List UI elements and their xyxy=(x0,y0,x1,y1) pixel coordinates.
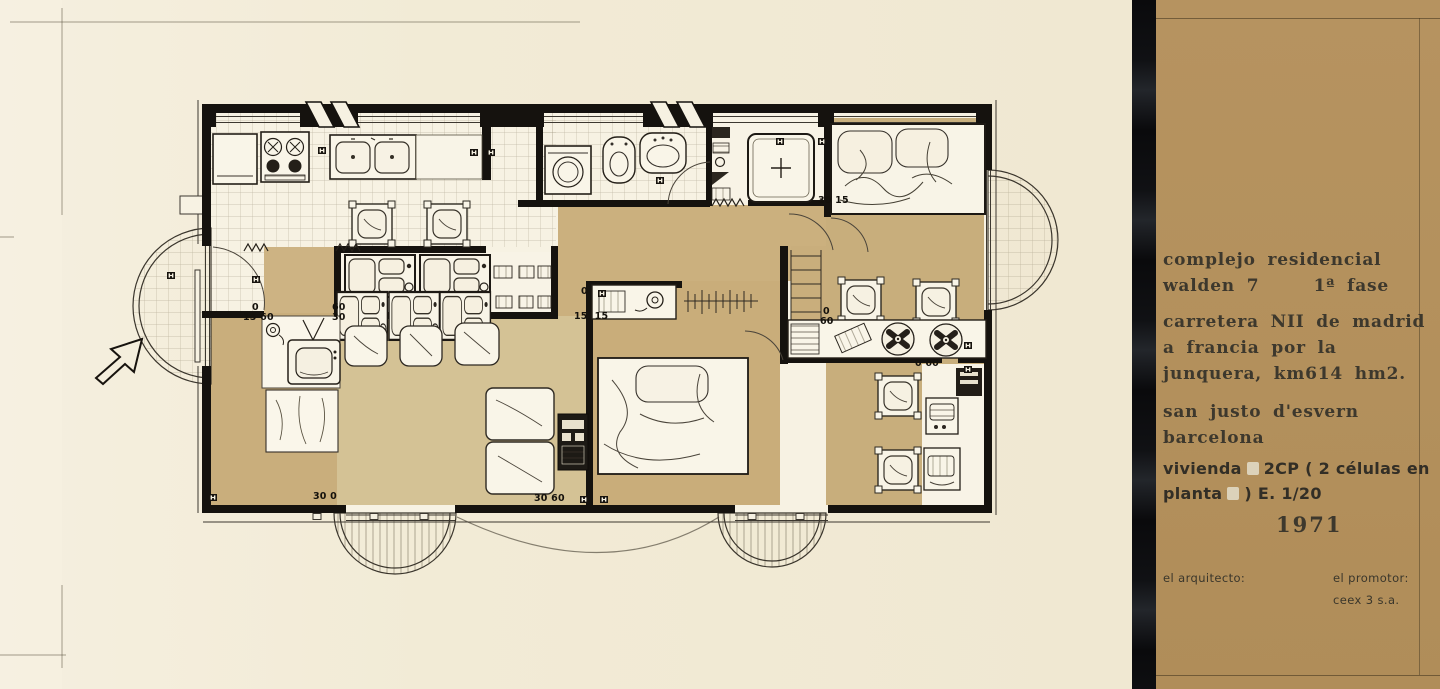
city-line1: san justo d'esvern xyxy=(1163,402,1359,422)
rug xyxy=(266,390,338,452)
dwelling-line1: vivienda 2CP ( 2 células en xyxy=(1163,459,1430,478)
dwelling-type: 2CP ( 2 células en xyxy=(1264,459,1430,478)
kitchen-counter xyxy=(416,135,482,179)
chair xyxy=(838,277,884,323)
drawing-year: 1971 xyxy=(1276,512,1342,537)
chair xyxy=(913,279,959,325)
correction-spot xyxy=(1247,462,1259,475)
chair xyxy=(424,201,470,247)
chair xyxy=(875,447,921,493)
address-line1: carretera NII de madrid xyxy=(1163,312,1425,332)
drawing-scale: ) E. 1/20 xyxy=(1244,484,1321,503)
dimension-label: 30 15 xyxy=(818,196,849,206)
promoter-label: el promotor: xyxy=(1333,571,1409,585)
dimension-label: 30 xyxy=(332,313,346,323)
chair xyxy=(875,373,921,419)
panel-rule-right xyxy=(1419,18,1420,675)
panel-rule-top xyxy=(1156,18,1440,19)
bunk-bed xyxy=(420,255,490,297)
kitchen-sink xyxy=(330,135,416,179)
sideboard xyxy=(788,320,986,358)
tape-strip xyxy=(1132,0,1156,689)
project-name: walden 7 xyxy=(1163,276,1259,296)
washbasin xyxy=(640,133,686,173)
panel-rule-bottom xyxy=(1156,675,1440,676)
dimension-label: 0 xyxy=(581,287,588,297)
promoter-name: ceex 3 s.a. xyxy=(1333,593,1399,607)
kitchen xyxy=(213,132,482,184)
architect-label: el arquitecto: xyxy=(1163,571,1245,585)
bidet xyxy=(603,137,635,183)
dwelling-label2: planta xyxy=(1163,484,1222,503)
double-bed xyxy=(598,358,748,474)
address-line2: a francia por la xyxy=(1163,338,1337,358)
project-phase: 1ª fase xyxy=(1314,276,1389,296)
top-right-bed xyxy=(831,124,985,214)
dimension-label: 15 60 xyxy=(243,313,274,323)
floor-plan-drawing xyxy=(0,0,1132,689)
dwelling-line2: planta ) E. 1/20 xyxy=(1163,484,1322,503)
project-name-line2: walden 7 1ª fase xyxy=(1163,276,1389,296)
washing-machine xyxy=(545,146,591,194)
audio-unit xyxy=(558,414,588,470)
bunk-bed xyxy=(345,255,415,297)
project-name-line1: complejo residencial xyxy=(1163,250,1381,270)
dimension-label: 15 15 xyxy=(574,312,608,322)
dimension-label: 30 0 xyxy=(313,492,337,502)
record-disc xyxy=(882,323,914,355)
dimension-label: 0 60 xyxy=(915,359,939,369)
city-line2: barcelona xyxy=(1163,428,1264,448)
drawing-sheet: 015 606030015 1530 150600 6030 030 60 co… xyxy=(0,0,1440,689)
dimension-label: 60 xyxy=(820,317,834,327)
correction-spot xyxy=(1227,487,1239,500)
dwelling-label: vivienda xyxy=(1163,459,1242,478)
record-disc xyxy=(930,324,962,356)
dimension-label: 30 60 xyxy=(534,494,565,504)
chair xyxy=(349,201,395,247)
entrance-arrow xyxy=(96,339,142,384)
title-block-panel: complejo residencial walden 7 1ª fase ca… xyxy=(1156,0,1440,689)
address-line3: junquera, km614 hm2. xyxy=(1163,364,1406,384)
floor-cushions xyxy=(345,323,499,366)
stove xyxy=(261,132,309,182)
